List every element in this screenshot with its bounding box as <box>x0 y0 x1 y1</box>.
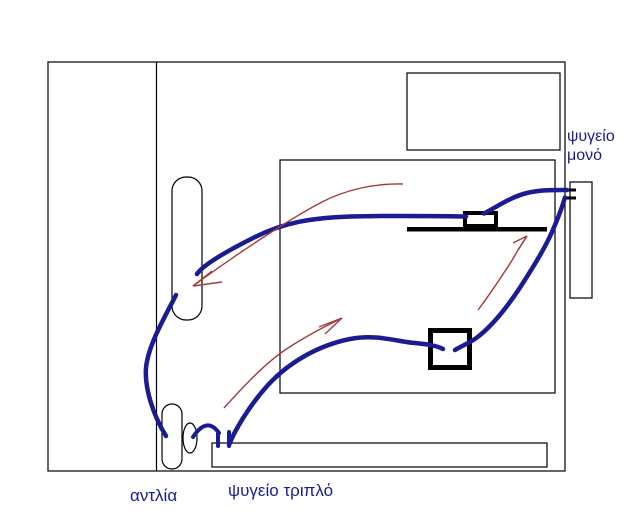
schematic-drawing <box>0 0 640 512</box>
condenser-box <box>465 213 496 226</box>
machine-room-rect <box>280 160 555 393</box>
drawing-canvas: ψυγείο μονό αντλία ψυγείο τριπλό <box>0 0 640 512</box>
room-outlines <box>48 62 592 471</box>
valve-box <box>431 331 470 368</box>
flow-arrow-2-shaft <box>224 318 342 408</box>
flow-arrow-to-single-fridge <box>478 236 527 310</box>
triple-fridge-label: ψυγείο τριπλό <box>228 481 333 500</box>
upper-cabinet-rect <box>407 73 560 150</box>
flow-arrow-to-radiator <box>193 184 403 286</box>
supply-pipe-lower <box>229 337 443 445</box>
return-pipe-left <box>197 216 466 274</box>
flow-arrow-1-shaft <box>193 184 403 286</box>
triple-fridge-rect <box>212 443 547 467</box>
pump-label: αντλία <box>130 486 177 505</box>
pump-wheel-ellipse <box>183 423 197 453</box>
outer-enclosure-rect <box>48 62 565 471</box>
flow-arrow-midline <box>224 318 342 408</box>
single-fridge-label: ψυγείο μονό <box>567 127 631 165</box>
flow-arrow-2-barb-a <box>319 318 342 327</box>
